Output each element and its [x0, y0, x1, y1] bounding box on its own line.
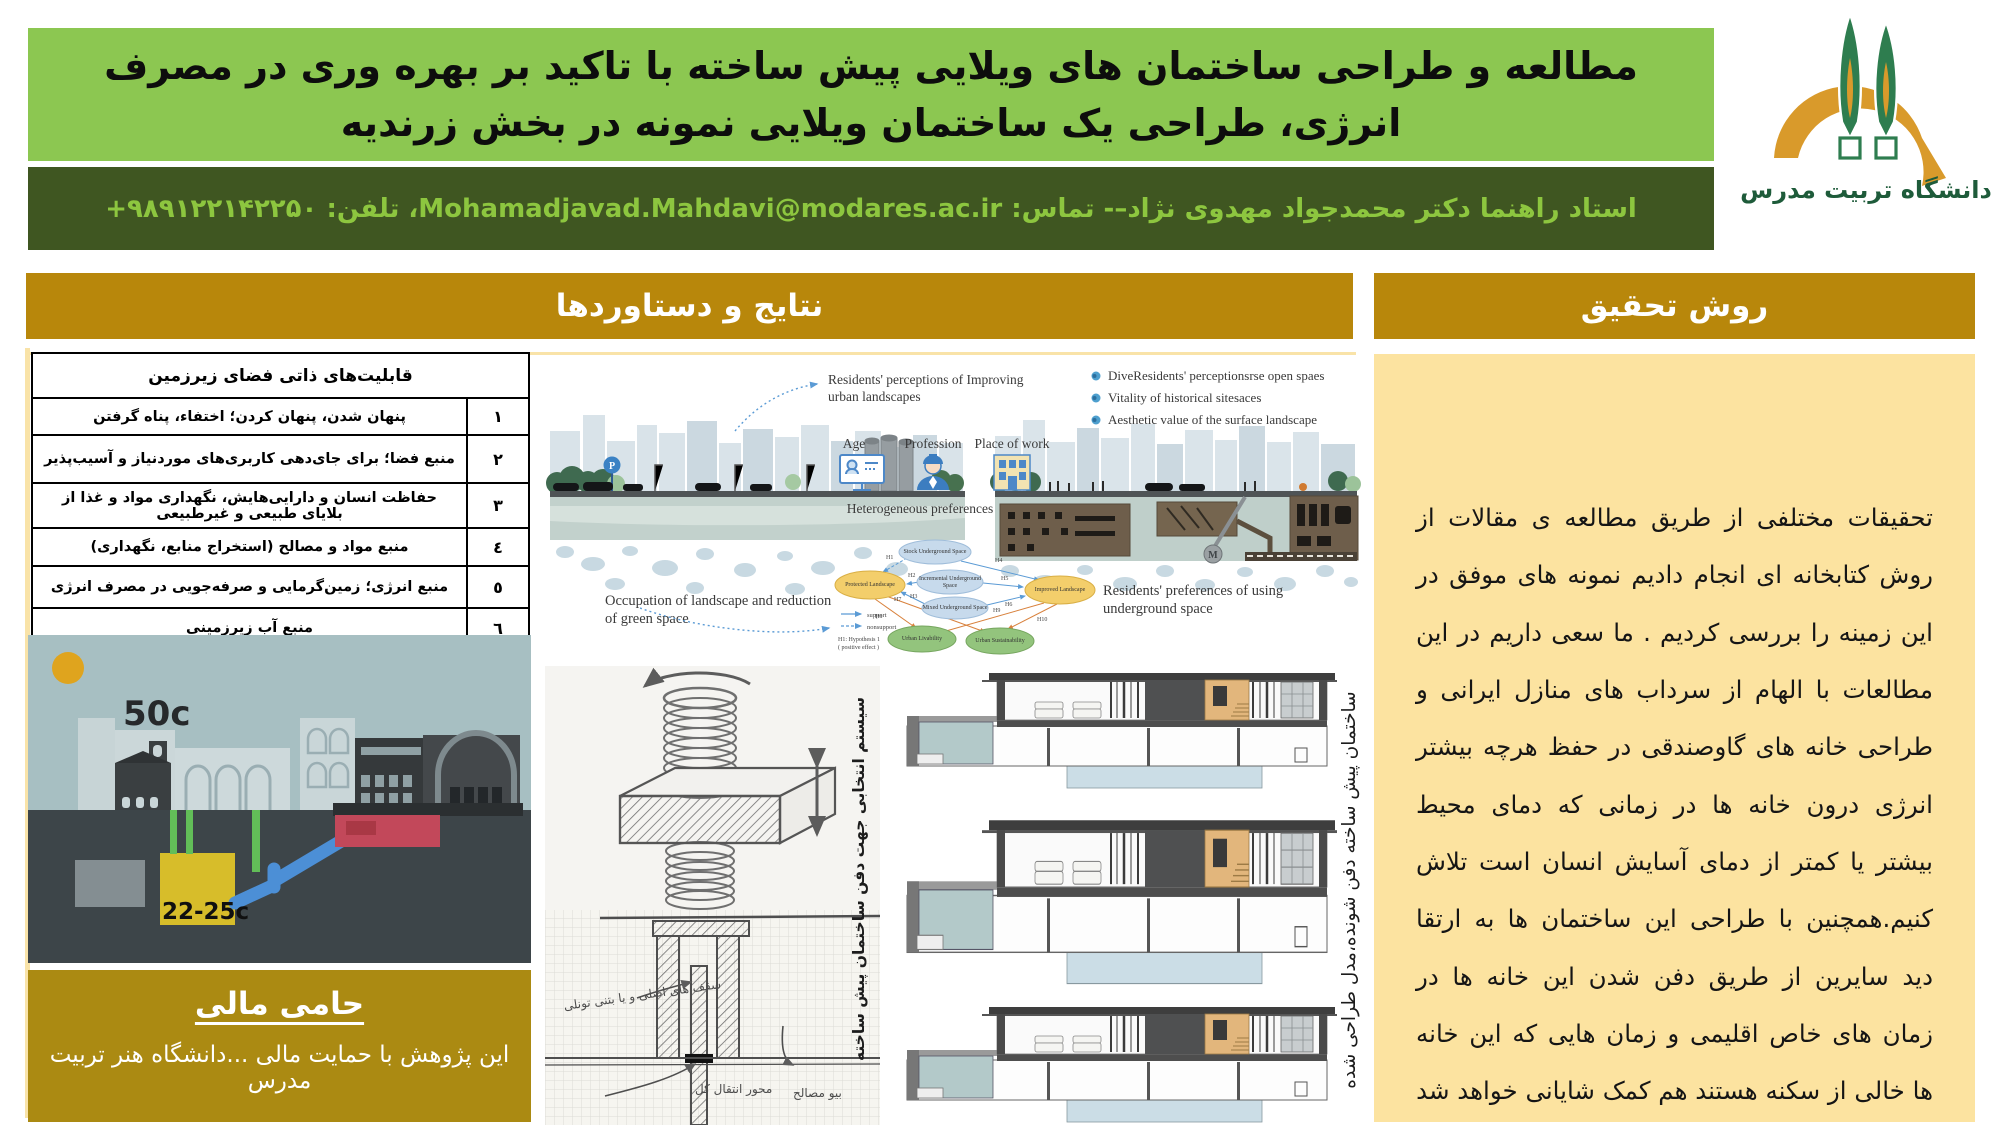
h-label: H3	[910, 594, 917, 600]
place-of-work-label: Place of work	[975, 436, 1050, 451]
method-panel: تحقیقات مختلفی از طریق مطالعه ی مقالات ا…	[1374, 354, 1975, 1122]
method-title: روش تحقیق	[1581, 288, 1769, 324]
bullet-3: Aesthetic value of the surface landscape	[1108, 412, 1317, 427]
supervisor-contact-line: استاد راهنما دکتر محمدجواد مهدوی نژاد–- …	[105, 194, 1637, 224]
tarbiat-modares-logo-icon: دانشگاه تربیت مدرس	[1738, 6, 1994, 216]
surface-temperature-label: 50c	[123, 694, 190, 734]
bullet-list: DiveResidents' perceptionsrse open spaes…	[1092, 368, 1325, 427]
row-text: منبع انرژی؛ زمین‌گرمایی و صرفه‌جویی در م…	[33, 567, 466, 607]
h-label: H10	[1037, 617, 1047, 623]
building-section-2	[907, 820, 1337, 983]
perception-caption: Residents' perceptions of Improving urba…	[828, 372, 1038, 418]
dotted-arrow-top	[735, 384, 817, 431]
poster-root: { "header": { "title": "مطالعه و طراحی س…	[0, 0, 2000, 1125]
node-mixed: Mixed Underground Space	[922, 598, 988, 619]
building-section-3	[907, 1007, 1337, 1122]
bullet-1: DiveResidents' perceptionsrse open spaes	[1108, 368, 1324, 383]
sketch-annotation: بیو مصالح	[793, 1086, 842, 1100]
row-number: ٢	[466, 436, 528, 482]
legend-nonsupport: nonsupport	[867, 624, 896, 631]
gray-cellar-room	[75, 860, 145, 907]
building-sections-model	[895, 666, 1345, 1125]
node-sustainability: Urban Sustainability	[967, 630, 1033, 653]
building-section-1	[907, 673, 1337, 788]
logo-cypress-trees	[1839, 14, 1897, 158]
model-vertical-label: ساختمان پیش ساخته دفن شونده،مدل طراحی شد…	[1339, 690, 1359, 1090]
logo-caption: دانشگاه تربیت مدرس	[1740, 176, 1992, 204]
node-improved: Improved Landscape	[1027, 579, 1093, 602]
row-number: ٥	[466, 567, 528, 607]
poster-title: مطالعه و طراحی ساختمان های ویلایی پیش سا…	[98, 38, 1644, 152]
occupation-caption: Occupation of landscape and reduction of…	[605, 592, 840, 640]
basement-slab	[333, 803, 523, 816]
h-label: H1	[886, 555, 893, 561]
sketch-annotation: محور انتقال کل	[695, 1082, 772, 1096]
urban-underground-figure: P	[545, 356, 1365, 666]
underground-capabilities-table: قابلیت‌های ذاتی فضای زیرزمین ١ پنهان شدن…	[31, 352, 530, 649]
row-text: منبع فضا؛ برای جای‌دهی کاربری‌های موردنی…	[33, 436, 466, 482]
burial-system-sketch: سقف های اصلی و یا بتنی تونلی محور انتقال…	[545, 666, 880, 1125]
flow-legend: support nonsupport H1: Hypothesis 1 ( po…	[838, 612, 896, 651]
h-label: H6	[1005, 602, 1012, 608]
cellar-temperature-label: 22-25c	[162, 899, 249, 925]
table-row: ٣ حفاظت انسان و دارایی‌هایش، نگهداری موا…	[33, 484, 528, 529]
sponsor-block: حامی مالی این پژوهش با حمایت مالی ...دان…	[28, 970, 531, 1122]
node-livability: Urban Livability	[889, 628, 955, 651]
sun-icon	[52, 652, 84, 684]
anchor-box-sketch	[620, 768, 835, 843]
h-label: H5	[1001, 576, 1008, 582]
sketch-vertical-label: سیستم انتخابی جهت دفن ساختمان پیش ساخته	[850, 697, 870, 987]
age-label: Age	[843, 436, 866, 451]
table-header: قابلیت‌های ذاتی فضای زیرزمین	[33, 354, 528, 399]
h-label: H4	[995, 558, 1002, 564]
supervisor-bar: استاد راهنما دکتر محمدجواد مهدوی نژاد–- …	[28, 167, 1714, 250]
table-row: ١ پنهان شدن، پنهان کردن؛ اختفاء، پناه گر…	[33, 399, 528, 436]
row-number: ٤	[466, 529, 528, 565]
preferences-caption: Residents' preferences of using undergro…	[1103, 582, 1338, 630]
heterogeneous-label: Heterogeneous preferences	[847, 501, 994, 516]
legend-support: support	[867, 612, 887, 619]
node-protected: Protected Landscape	[837, 574, 903, 597]
metro-sign-letter: M	[1208, 550, 1218, 561]
results-header-bar: نتایج و دستاوردها	[26, 273, 1353, 339]
table-row: ٥ منبع انرژی؛ زمین‌گرمایی و صرفه‌جویی در…	[33, 567, 528, 609]
table-row: ٢ منبع فضا؛ برای جای‌دهی کاربری‌های مورد…	[33, 436, 528, 484]
legend-note2: ( positive effect )	[838, 644, 879, 651]
profession-label: Profession	[905, 436, 962, 451]
method-header-bar: روش تحقیق	[1374, 273, 1975, 339]
sponsor-text: این پژوهش با حمایت مالی ...دانشگاه هنر ت…	[46, 1042, 513, 1094]
row-text: حفاظت انسان و دارایی‌هایش، نگهداری مواد …	[33, 484, 466, 527]
poster-title-block: مطالعه و طراحی ساختمان های ویلایی پیش سا…	[28, 28, 1714, 161]
row-number: ١	[466, 399, 528, 434]
h-label: H2	[908, 573, 915, 579]
method-text: تحقیقات مختلفی از طریق مطالعه ی مقالات ا…	[1416, 489, 1933, 1120]
h-label: H7	[894, 597, 901, 603]
building-icon	[994, 455, 1030, 490]
bullet-2: Vitality of historical sitesaces	[1108, 390, 1261, 405]
legend-note1: H1: Hypothesis 1	[838, 637, 880, 643]
university-logo: دانشگاه تربیت مدرس	[1738, 6, 1994, 216]
traditional-cooling-diagram: 50c 22-25c	[28, 635, 531, 963]
sponsor-title: حامی مالی	[28, 986, 531, 1022]
row-text: منبع مواد و مصالح (استخراج منابع، نگهدار…	[33, 529, 466, 565]
h-label: H9	[993, 608, 1000, 614]
small-tree	[785, 474, 801, 490]
row-number: ٣	[466, 484, 528, 527]
parking-sign-letter: P	[609, 461, 615, 472]
node-stock: Stock Underground Space	[901, 541, 969, 564]
red-room-detail	[346, 821, 376, 835]
row-text: پنهان شدن، پنهان کردن؛ اختفاء، پناه گرفت…	[33, 399, 466, 434]
results-title: نتایج و دستاوردها	[556, 288, 824, 324]
road-left	[550, 491, 965, 497]
node-incremental: Incremental Underground Space	[917, 571, 983, 594]
table-row: ٤ منبع مواد و مصالح (استخراج منابع، نگهد…	[33, 529, 528, 567]
